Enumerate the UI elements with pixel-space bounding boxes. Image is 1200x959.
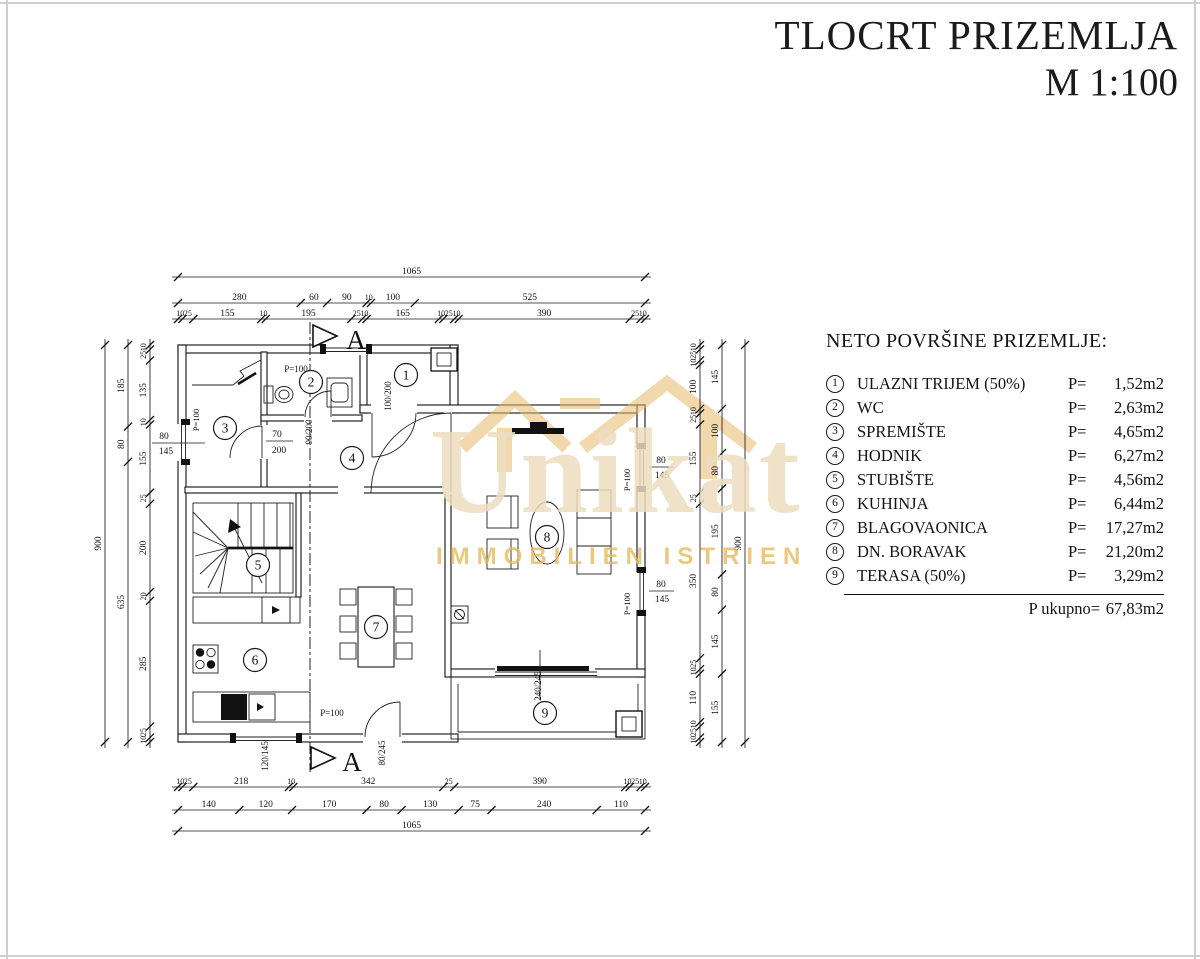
size-label: 120/145 [260,741,270,771]
legend-heading: NETO POVRŠINE PRIZEMLJE: [826,330,1164,353]
legend-row: 8DN. BORAVAKP=21,20m2 [826,540,1164,564]
dim-value: 635 [117,595,127,610]
dim-value: 130 [423,800,438,810]
size-label: 80/245 [377,740,387,766]
legend-total-value: 67,83m2 [1100,599,1164,619]
dim-value: 900 [94,536,104,551]
dim-value: 20 [139,592,148,600]
dim-value: 10 [639,309,647,318]
chair [340,589,356,605]
size-label: P=100 [191,409,201,431]
area-prefix: P= [1068,374,1100,394]
area-value: 4,65m2 [1100,422,1164,442]
watermark-roof-logo [462,383,753,479]
area-value: 17,27m2 [1100,518,1164,538]
dim-value: 80 [117,439,127,449]
room-number-badge: 6 [826,495,844,513]
dim-value: 140 [202,800,217,810]
size-label: 80 [656,580,666,590]
area-value: 6,27m2 [1100,446,1164,466]
size-label: A [346,325,366,355]
dim-value: 90 [342,293,352,303]
dim-value: 10 [689,667,698,675]
dim-value: 25 [689,494,698,502]
legend-row: 3SPREMIŠTEP=4,65m2 [826,420,1164,444]
room-bubble-number: 9 [542,706,549,721]
size-label: 90/200 [304,419,314,445]
dim-value: 1065 [402,821,421,831]
size-label: P=100 [622,593,632,615]
room-name: DN. BORAVAK [857,542,1068,562]
dim-value: 25 [689,660,698,668]
area-value: 21,20m2 [1100,542,1164,562]
dim-value: 10 [452,309,460,318]
area-value: 1,52m2 [1100,374,1164,394]
dim-value: 25 [139,351,148,359]
size-label: 70 [272,430,282,440]
area-prefix: P= [1068,470,1100,490]
dim-value: 195 [301,309,316,319]
legend-row: 6KUHINJAP=6,44m2 [826,492,1164,516]
room-name: SPREMIŠTE [857,422,1068,442]
room-number-badge: 1 [826,375,844,393]
room-bubble-number: 7 [373,620,380,635]
dim-value: 120 [259,800,274,810]
dim-value: 155 [220,309,235,319]
terrace-column [616,711,642,737]
dim-value: 100 [689,380,699,395]
room-number-badge: 9 [826,567,844,585]
size-label: 100/200 [383,381,393,411]
dim-value: 155 [711,700,721,715]
dim-value: 285 [139,656,149,671]
dim-value: 110 [689,691,699,705]
dim-value: 200 [139,541,149,556]
dim-value: 25 [689,728,698,736]
dim-value: 10 [260,309,268,318]
dim-value: 100 [386,293,401,303]
room-number-badge: 4 [826,447,844,465]
legend-row: 9TERASA (50%)P=3,29m2 [826,564,1164,588]
dim-value: 10 [139,418,148,426]
room-name: WC [857,398,1068,418]
dim-value: 80 [711,587,721,597]
dim-value: 10 [689,407,698,415]
dim-value: 25 [184,309,192,318]
dim-value: 155 [689,451,699,466]
stairs [193,503,293,593]
size-label: 200 [272,446,287,456]
dim-value: 10 [139,343,148,351]
area-value: 2,63m2 [1100,398,1164,418]
room-bubble-number: 3 [222,421,229,436]
size-label: 80 [656,456,666,466]
area-prefix: P= [1068,398,1100,418]
area-legend: NETO POVRŠINE PRIZEMLJE: 1ULAZNI TRIJEM … [826,330,1164,619]
legend-items: 1ULAZNI TRIJEM (50%)P=1,52m22WCP=2,63m23… [826,372,1164,588]
dim-value: 25 [445,777,453,786]
area-value: 4,56m2 [1100,470,1164,490]
dim-value: 25 [139,728,148,736]
dim-value: 390 [533,777,548,787]
size-label: 145 [159,447,174,457]
legend-row: 7BLAGOVAONICAP=17,27m2 [826,516,1164,540]
size-label: P=100 [622,469,632,491]
chimney [431,348,457,371]
label-fraction-bars [152,441,674,591]
dim-value: 145 [711,370,721,385]
size-label: 145 [655,595,670,605]
room-number-badge: 2 [826,399,844,417]
room-name: TERASA (50%) [857,566,1068,586]
dim-value: 10 [689,736,698,744]
room-name: STUBIŠTE [857,470,1068,490]
legend-total-row: P ukupno= 67,83m2 [826,599,1164,619]
room-bubble-number: 8 [544,530,551,545]
dim-value: 218 [234,777,249,787]
room-name: BLAGOVAONICA [857,518,1068,538]
room-bubble-number: 5 [255,558,262,573]
window-jamb [181,419,190,425]
area-prefix: P= [1068,566,1100,586]
area-prefix: P= [1068,494,1100,514]
sofa [577,490,611,574]
room-bubble-number: 2 [308,375,315,390]
legend-row: 1ULAZNI TRIJEM (50%)P=1,52m2 [826,372,1164,396]
legend-total-label: P ukupno= [1029,599,1101,619]
area-value: 3,29m2 [1100,566,1164,586]
room-bubble-number: 1 [403,368,410,383]
dim-value: 25 [689,415,698,423]
room-number-badge: 5 [826,471,844,489]
size-label: 145 [655,471,670,481]
dim-value: 155 [139,451,149,466]
dim-value: 10 [689,720,698,728]
dim-value: 145 [711,634,721,649]
dim-value: 390 [537,309,552,319]
dim-value: 170 [322,800,337,810]
room-number-badge: 7 [826,519,844,537]
area-prefix: P= [1068,446,1100,466]
room-name: ULAZNI TRIJEM (50%) [857,374,1068,394]
legend-row: 2WCP=2,63m2 [826,396,1164,420]
dim-value: 80 [379,800,389,810]
room-bubble-number: 6 [252,653,259,668]
storage-shelf [192,360,261,385]
dim-value: 350 [689,574,699,589]
dim-value: 165 [396,309,411,319]
dim-value: 75 [470,800,480,810]
area-prefix: P= [1068,542,1100,562]
dim-value: 10 [287,777,295,786]
size-label: P=100 [320,708,344,718]
dim-value: 110 [614,800,628,810]
area-prefix: P= [1068,518,1100,538]
room-number-badge: 8 [826,543,844,561]
dim-value: 25 [689,351,698,359]
dim-value: 10 [689,343,698,351]
room-number-badge: 3 [826,423,844,441]
dim-value: 60 [309,293,319,303]
area-value: 6,44m2 [1100,494,1164,514]
dim-value: 100 [711,424,721,439]
dim-value: 135 [139,383,149,398]
dim-value: 900 [734,536,744,551]
dim-value: 25 [139,494,148,502]
dim-value: 280 [232,293,247,303]
room-bubble-number: 4 [349,451,356,466]
legend-row: 5STUBIŠTEP=4,56m2 [826,468,1164,492]
dim-value: 240 [537,800,552,810]
dim-value: 195 [711,524,721,539]
dim-value: 10 [365,293,373,302]
room-name: HODNIK [857,446,1068,466]
dim-value: 25 [184,777,192,786]
size-label: A [342,747,362,777]
size-label: 240/245 [533,671,543,701]
legend-total-divider [844,594,1164,595]
dim-value: 10 [360,309,368,318]
dim-value: 342 [361,777,376,787]
dim-value: 10 [689,359,698,367]
size-label: 80 [159,432,169,442]
kitchen-sink [221,694,247,720]
dim-value: 525 [523,293,538,303]
armchair [487,496,518,528]
dim-value: 10 [139,736,148,744]
dim-value: 80 [711,466,721,476]
legend-row: 4HODNIKP=6,27m2 [826,444,1164,468]
dim-value: 10 [639,777,647,786]
room-name: KUHINJA [857,494,1068,514]
dim-value: 1065 [402,267,421,277]
section-marker-bottom [311,747,335,769]
area-prefix: P= [1068,422,1100,442]
dim-value: 185 [117,378,127,393]
